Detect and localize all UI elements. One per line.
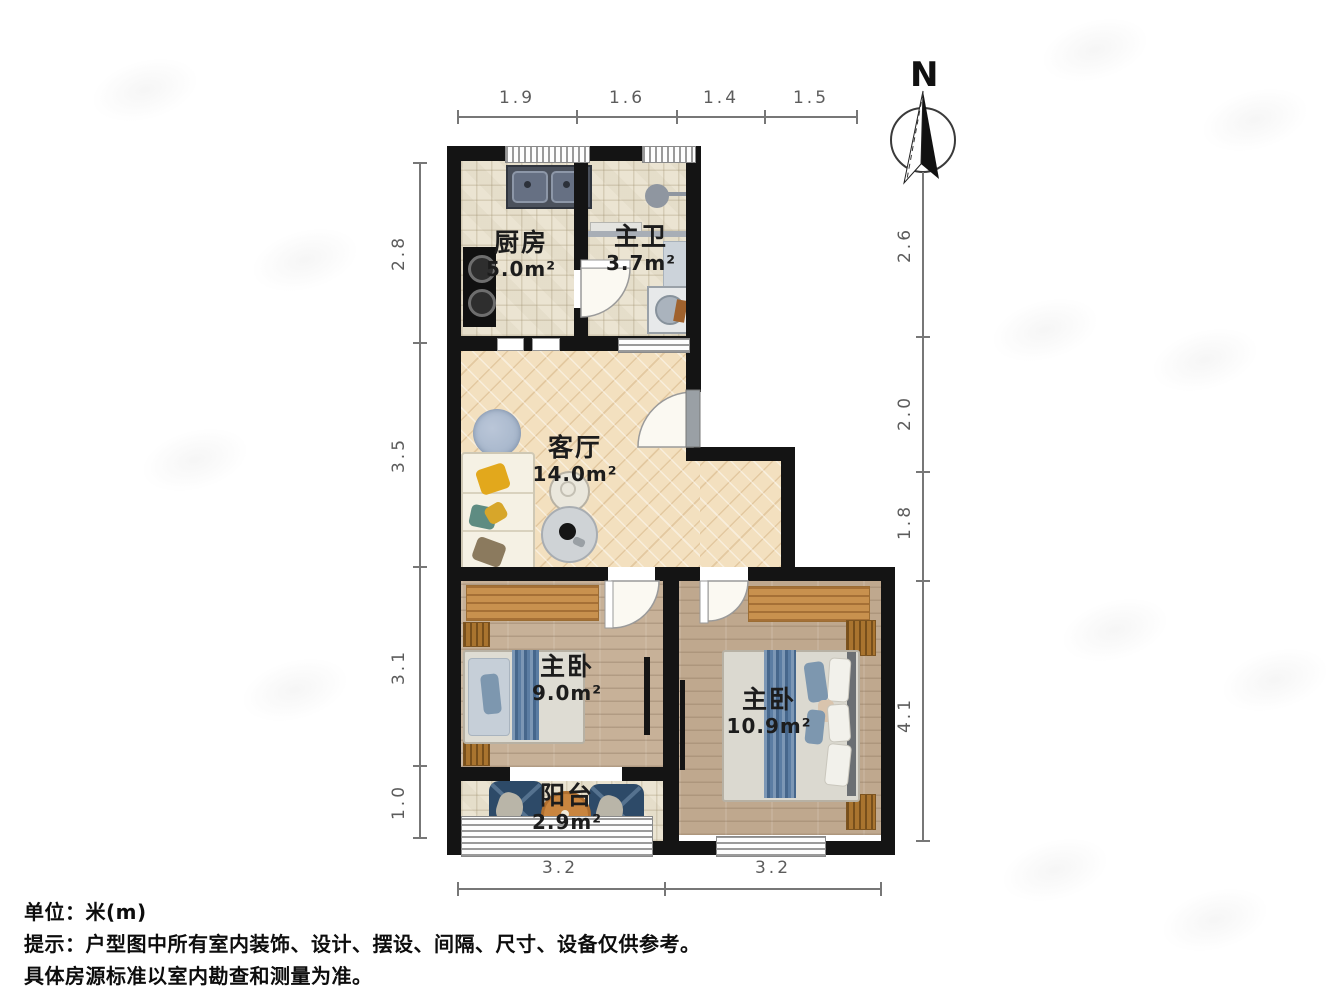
- wall: [663, 581, 679, 855]
- sink-basin: [512, 171, 548, 203]
- dim-left-2: 3.5: [389, 437, 409, 473]
- burner-icon: [468, 289, 496, 317]
- room-area: 5.0m²: [486, 258, 556, 281]
- ruler-tick: [676, 110, 678, 124]
- ruler-tick: [916, 471, 930, 473]
- room-area: 10.9m²: [727, 715, 812, 738]
- ruler-bottom: [458, 888, 882, 890]
- dim-left-1: 2.8: [389, 235, 409, 271]
- watermark-blob: [1154, 877, 1276, 963]
- watermark-blob: [1034, 7, 1156, 93]
- wall: [622, 767, 663, 781]
- coffee-table: [541, 506, 598, 563]
- floor-plan-image: N 厨房 5.0m² 主卫 3.7m² 客厅 14.0m² 主卧 9.0m² 主…: [0, 0, 1333, 1000]
- bed-pillow: [826, 657, 851, 702]
- dim-right-2: 2.0: [895, 395, 915, 431]
- ruler-tick: [576, 110, 578, 124]
- window: [716, 836, 826, 857]
- watermark-blob: [1194, 77, 1316, 163]
- room-name: 厨房: [486, 229, 556, 258]
- room-name: 客厅: [533, 434, 618, 463]
- watermark-blob: [134, 417, 256, 503]
- room-label-bedroom-right: 主卧 10.9m²: [727, 686, 812, 738]
- wall: [574, 161, 588, 270]
- wall: [881, 567, 895, 855]
- ruler-tick: [856, 110, 858, 124]
- dim-left-4: 1.0: [389, 784, 409, 820]
- sliding-door-mark: [644, 657, 650, 735]
- watermark-blob: [84, 47, 206, 133]
- watermark-blob: [1054, 587, 1176, 673]
- room-area: 2.9m²: [532, 811, 602, 834]
- room-name: 主卧: [532, 653, 602, 682]
- ruler-tick: [916, 336, 930, 338]
- wall: [655, 567, 700, 581]
- ruler-tick: [413, 765, 427, 767]
- dim-top-3: 1.4: [703, 88, 739, 108]
- compass-north-label: N: [910, 55, 938, 95]
- ruler-tick: [880, 882, 882, 896]
- sliding-door-mark: [680, 680, 685, 770]
- dim-top-4: 1.5: [793, 88, 829, 108]
- dim-right-4: 4.1: [895, 697, 915, 733]
- footer-disclaimer-1: 提示：户型图中所有室内装饰、设计、摆设、间隔、尺寸、设备仅供参考。: [24, 928, 701, 957]
- room-name: 主卧: [727, 686, 812, 715]
- dim-right-1: 2.6: [895, 227, 915, 263]
- bed-pillow: [824, 743, 852, 787]
- watermark-blob: [1214, 637, 1333, 723]
- wall: [686, 447, 795, 461]
- wall: [686, 146, 701, 392]
- dim-left-3: 3.1: [389, 649, 409, 685]
- bed-pillow: [827, 703, 852, 742]
- wall: [461, 767, 510, 781]
- footer-unit-note: 单位：米(m): [24, 896, 147, 925]
- counter-pass: [532, 338, 560, 351]
- ruler-tick: [413, 837, 427, 839]
- dim-top-2: 1.6: [609, 88, 645, 108]
- watermark-blob: [244, 217, 366, 303]
- room-name: 主卫: [606, 223, 676, 252]
- watermark-blob: [234, 647, 356, 733]
- room-area: 9.0m²: [532, 682, 602, 705]
- footer-disclaimer-2: 具体房源标准以室内勘查和测量为准。: [24, 960, 373, 989]
- desk: [466, 585, 599, 621]
- ruler-tick: [457, 882, 459, 896]
- ruler-left: [419, 163, 421, 838]
- round-rug: [473, 409, 521, 457]
- ruler-tick: [916, 840, 930, 842]
- room-area: 14.0m²: [533, 463, 618, 486]
- wall: [748, 567, 895, 581]
- wall: [447, 567, 608, 581]
- dim-right-3: 1.8: [895, 504, 915, 540]
- wall-cabinet: [463, 741, 490, 766]
- watermark-blob: [994, 827, 1116, 913]
- living-room-floor-extension: [700, 461, 781, 567]
- toilet: [645, 184, 669, 208]
- ruler-top: [458, 116, 857, 118]
- ruler-tick: [413, 342, 427, 344]
- ruler-tick: [664, 882, 666, 896]
- room-label-balcony: 阳台 2.9m²: [532, 782, 602, 834]
- ruler-tick: [764, 110, 766, 124]
- ruler-tick: [413, 162, 427, 164]
- room-label-kitchen: 厨房 5.0m²: [486, 229, 556, 281]
- window: [618, 338, 690, 353]
- dim-bottom-2: 3.2: [755, 858, 791, 878]
- window: [642, 146, 696, 163]
- ruler-tick: [916, 580, 930, 582]
- watermark-blob: [1144, 317, 1266, 403]
- ruler-right: [922, 178, 924, 841]
- watermark-blob: [984, 287, 1106, 373]
- room-label-living-room: 客厅 14.0m²: [533, 434, 618, 486]
- desk: [748, 586, 870, 622]
- window: [505, 146, 590, 163]
- room-label-bedroom-left: 主卧 9.0m²: [532, 653, 602, 705]
- room-label-bathroom: 主卫 3.7m²: [606, 223, 676, 275]
- room-area: 3.7m²: [606, 252, 676, 275]
- ruler-tick: [457, 110, 459, 124]
- sofa-cushion-line: [463, 492, 533, 494]
- faucet-icon: [563, 181, 570, 188]
- table-decor: [572, 536, 586, 548]
- counter-pass: [497, 338, 524, 351]
- wall: [447, 146, 461, 855]
- wall: [574, 308, 588, 336]
- dim-top-1: 1.9: [499, 88, 535, 108]
- dim-bottom-1: 3.2: [542, 858, 578, 878]
- wall: [781, 447, 795, 573]
- room-name: 阳台: [532, 782, 602, 811]
- sofa-cushion-line: [463, 530, 533, 532]
- wall-cabinet: [463, 622, 490, 647]
- faucet-icon: [524, 181, 531, 188]
- ruler-tick: [413, 566, 427, 568]
